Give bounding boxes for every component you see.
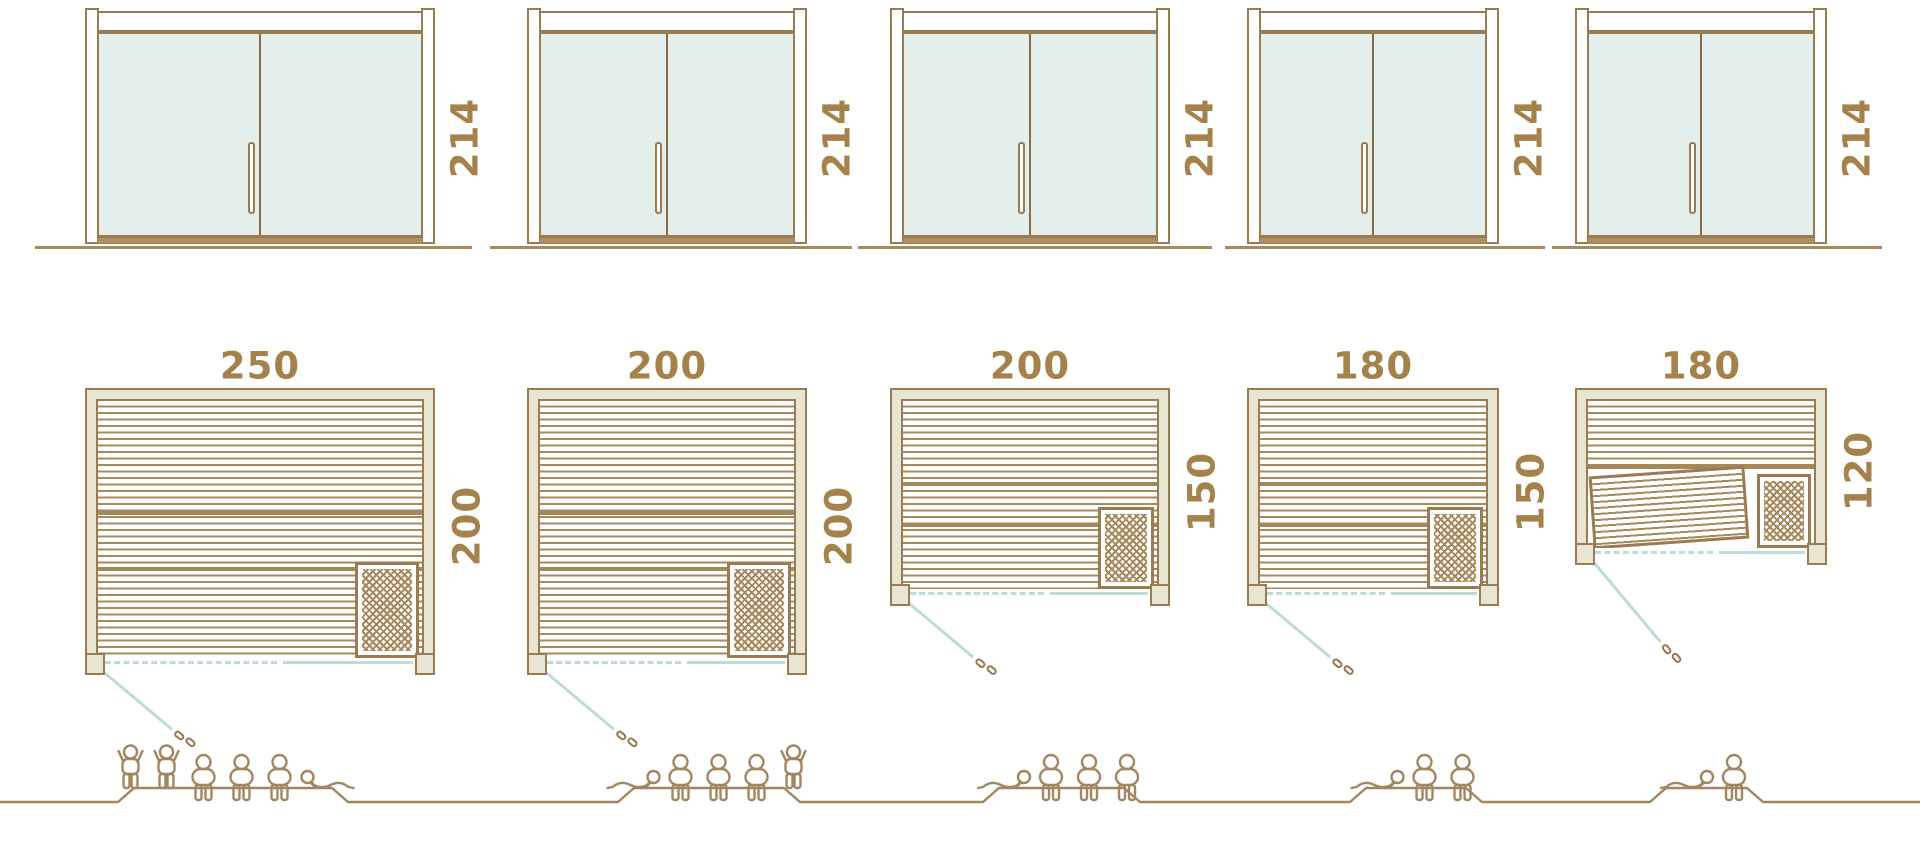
plan-interior (538, 399, 796, 664)
floor-plan (1247, 388, 1499, 595)
bench-edge-line (98, 511, 422, 515)
plan-width-dimension: 200 (990, 345, 1070, 388)
door-threshold (1587, 237, 1815, 244)
door-opening-line (687, 661, 785, 664)
person-sitting-icon (1414, 769, 1436, 785)
person-sitting-icon (1116, 769, 1138, 785)
sauna-unit: 214200200 (0, 0, 1920, 843)
person-sitting-icon (1078, 769, 1100, 785)
door-frame-post (85, 8, 99, 244)
person-sitting-icon (674, 755, 688, 769)
person-sitting-icon (1456, 755, 1470, 769)
wall-stub (1247, 584, 1267, 606)
person-sitting-icon (269, 769, 291, 785)
person-sitting-icon (197, 755, 211, 769)
door-handle (1689, 142, 1696, 214)
door-frame-post (1575, 8, 1589, 244)
bench-slats (1588, 401, 1814, 469)
person-sitting-icon (235, 755, 249, 769)
person-lying-icon (648, 771, 660, 783)
door-opening-line (1719, 551, 1805, 554)
heater (1757, 474, 1811, 548)
door-frame-header (539, 11, 795, 32)
person-sitting-icon (231, 769, 253, 785)
angled-bench (1589, 466, 1750, 550)
bench-edge-line (903, 523, 1157, 527)
open-door-swing-line (1261, 598, 1356, 680)
plan-width-dimension: 250 (220, 345, 300, 388)
capacity-figures (0, 740, 1920, 843)
glass-panels (1259, 32, 1487, 237)
person-lying-icon (1018, 771, 1030, 783)
door-opening-dashed-line (1595, 551, 1713, 554)
door-threshold (97, 237, 423, 244)
wall-stub (1150, 584, 1170, 606)
bench-edge-line (903, 482, 1157, 486)
door-frame-header (1587, 11, 1815, 32)
door-elevation (890, 8, 1170, 244)
door-threshold (1259, 237, 1487, 244)
door-frame-post (1247, 8, 1261, 244)
person-sitting-icon (273, 755, 287, 769)
person-lying-icon (1701, 771, 1713, 783)
floor-plan (85, 388, 435, 664)
bench-edge-line (540, 567, 794, 571)
glass-panels (539, 32, 795, 237)
door-handle-icon (1660, 643, 1672, 656)
plan-depth-dimension: 150 (1181, 451, 1224, 531)
plan-depth-dimension: 200 (818, 486, 861, 566)
person-standing-icon (124, 774, 130, 788)
wall-stub (890, 584, 910, 606)
person-sitting-icon (1727, 755, 1741, 769)
person-standing-icon (787, 746, 800, 759)
person-lying-icon (302, 771, 314, 783)
door-divider (1372, 34, 1374, 235)
capacity-row (0, 740, 1920, 843)
door-height-dimension: 214 (1836, 98, 1879, 178)
heater (727, 562, 791, 658)
person-standing-icon (160, 746, 173, 759)
person-standing-icon (786, 759, 802, 774)
bench-edge-line (1260, 523, 1486, 527)
door-elevation (85, 8, 435, 244)
floor-plan (527, 388, 807, 664)
plan-interior (96, 399, 424, 664)
person-sitting-icon (1040, 769, 1062, 785)
heater (355, 562, 419, 658)
floor-plan (890, 388, 1170, 595)
bench-edge-line (540, 511, 794, 515)
person-sitting-icon (746, 769, 768, 785)
sauna-unit: 214180120 (0, 0, 1920, 843)
plan-depth-dimension: 150 (1510, 451, 1553, 531)
sauna-unit: 214200150 (0, 0, 1920, 843)
heater (1427, 507, 1483, 589)
door-elevation (1575, 8, 1827, 244)
sauna-unit: 214250200 (0, 0, 1920, 843)
door-divider (1700, 34, 1702, 235)
wall-stub (1479, 584, 1499, 606)
door-handle (1018, 142, 1025, 214)
swing-line (907, 601, 974, 658)
person-sitting-icon (1465, 785, 1471, 800)
bench-edge-line (98, 567, 422, 571)
person-sitting-icon (708, 769, 730, 785)
swing-line (102, 670, 173, 730)
floor-plan (1575, 388, 1827, 554)
ground-line (858, 246, 1212, 249)
person-sitting-icon (670, 769, 692, 785)
person-standing-icon (123, 759, 139, 774)
person-sitting-icon (1723, 769, 1745, 785)
person-standing-icon (787, 774, 793, 788)
door-opening-dashed-line (105, 661, 277, 664)
door-handle-icon (974, 657, 987, 669)
person-standing-icon (168, 774, 174, 788)
plan-width-dimension: 180 (1333, 345, 1413, 388)
ground-line (490, 246, 852, 249)
wall-stub (415, 653, 435, 675)
wall-stub (1807, 543, 1827, 565)
ground-line (35, 246, 472, 249)
swing-line (1264, 601, 1331, 658)
plan-interior (1258, 399, 1488, 595)
door-height-dimension: 214 (444, 98, 487, 178)
door-threshold (539, 237, 795, 244)
plan-width-dimension: 180 (1661, 345, 1741, 388)
door-opening-line (1391, 592, 1477, 595)
person-sitting-icon (1418, 755, 1432, 769)
swing-line (544, 670, 615, 730)
door-handle-icon (1342, 664, 1355, 676)
heater (1098, 507, 1154, 589)
person-sitting-icon (1082, 755, 1096, 769)
door-handle-icon (1331, 657, 1344, 669)
wall-stub (1575, 543, 1595, 565)
door-frame-post (1813, 8, 1827, 244)
glass-panels (97, 32, 423, 237)
door-elevation (527, 8, 807, 244)
door-frame-post (1485, 8, 1499, 244)
person-sitting-icon (750, 755, 764, 769)
open-door-swing-line (1589, 558, 1684, 668)
door-elevation (1247, 8, 1499, 244)
person-standing-icon (159, 759, 175, 774)
ground-line (1552, 246, 1882, 249)
glass-panels (902, 32, 1158, 237)
door-height-dimension: 214 (1179, 98, 1222, 178)
door-handle (248, 142, 255, 214)
plan-depth-dimension: 200 (446, 486, 489, 566)
person-standing-icon (124, 746, 137, 759)
person-sitting-icon (712, 755, 726, 769)
door-opening-line (1050, 592, 1148, 595)
door-frame-post (421, 8, 435, 244)
door-height-dimension: 214 (816, 98, 859, 178)
sauna-size-diagram: 2142502002142002002142001502141801502141… (0, 0, 1920, 843)
person-standing-icon (132, 774, 138, 788)
sauna-unit: 214180150 (0, 0, 1920, 843)
door-frame-post (890, 8, 904, 244)
person-standing-icon (160, 774, 166, 788)
wall-stub (527, 653, 547, 675)
door-height-dimension: 214 (1508, 98, 1551, 178)
door-frame-header (902, 11, 1158, 32)
door-frame-post (1156, 8, 1170, 244)
person-lying-icon (608, 783, 651, 788)
door-handle-icon (1670, 651, 1682, 664)
plan-interior (1586, 399, 1816, 554)
door-divider (1029, 34, 1031, 235)
plan-width-dimension: 200 (627, 345, 707, 388)
door-frame-post (793, 8, 807, 244)
door-frame-post (527, 8, 541, 244)
person-sitting-icon (1044, 755, 1058, 769)
swing-line (1592, 561, 1662, 643)
person-sitting-icon (1452, 769, 1474, 785)
wall-stub (85, 653, 105, 675)
person-sitting-icon (1129, 785, 1135, 800)
door-divider (259, 34, 261, 235)
door-opening-line (283, 661, 413, 664)
door-frame-header (1259, 11, 1487, 32)
door-opening-dashed-line (547, 661, 681, 664)
door-opening-dashed-line (910, 592, 1044, 595)
wall-stub (787, 653, 807, 675)
glass-panels (1587, 32, 1815, 237)
plan-interior (901, 399, 1159, 595)
open-door-swing-line (904, 598, 999, 680)
ground-line (1225, 246, 1545, 249)
door-handle-icon (985, 664, 998, 676)
person-standing-icon (795, 774, 801, 788)
person-lying-icon (1392, 771, 1404, 783)
person-sitting-icon (193, 769, 215, 785)
door-threshold (902, 237, 1158, 244)
door-divider (666, 34, 668, 235)
person-sitting-icon (1120, 755, 1134, 769)
bench-edge-line (1260, 482, 1486, 486)
door-handle (655, 142, 662, 214)
door-opening-dashed-line (1267, 592, 1385, 595)
plan-depth-dimension: 120 (1838, 431, 1881, 511)
door-frame-header (97, 11, 423, 32)
door-handle (1361, 142, 1368, 214)
